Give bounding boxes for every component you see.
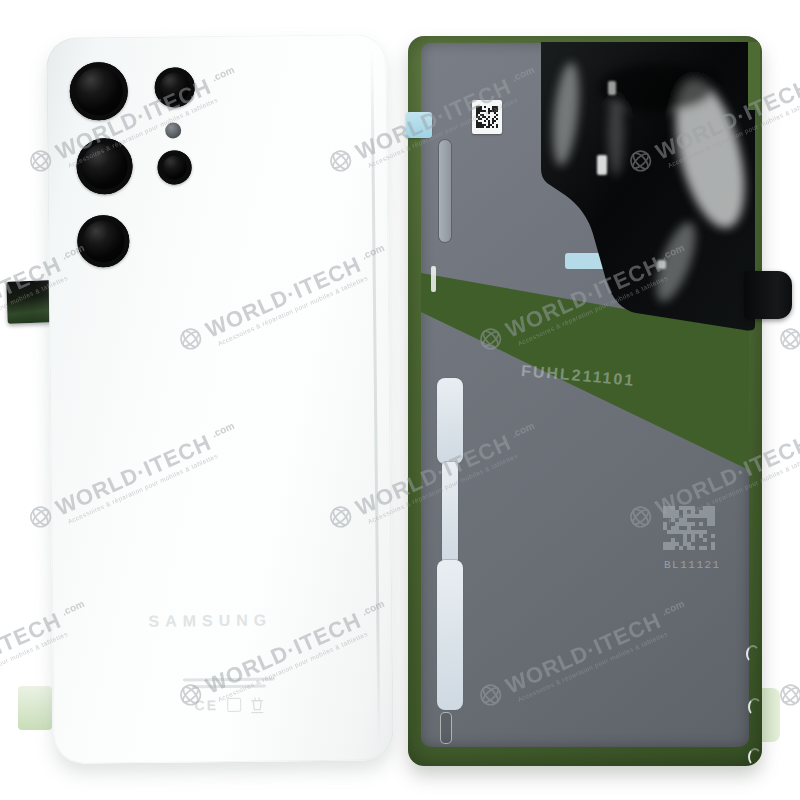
cut-mark-right-1 bbox=[746, 645, 760, 663]
adhesive-border-top-right bbox=[748, 42, 760, 110]
camera-protective-foil bbox=[408, 36, 762, 766]
watermark: WORLD·ITECH.comAccessoires & réparation … bbox=[173, 0, 393, 6]
regulatory-text-line bbox=[192, 685, 266, 689]
product-photo: SAMSUNG CE bbox=[0, 0, 800, 800]
cut-mark-right-3 bbox=[748, 748, 762, 766]
foil-pull-tab-right bbox=[744, 271, 792, 319]
weee-bin-icon bbox=[250, 696, 264, 714]
regulatory-markings: CE bbox=[171, 675, 287, 714]
camera-lens-medium-right bbox=[157, 150, 191, 184]
samsung-logo-text: SAMSUNG bbox=[140, 611, 280, 630]
adhesive-tab-bottom-left bbox=[18, 686, 52, 730]
camera-lens-large-middle bbox=[76, 138, 133, 195]
laser-af-sensor-dot bbox=[165, 122, 181, 138]
watermark: WORLD·ITECH.comAccessoires & réparation … bbox=[0, 0, 94, 6]
camera-lens-large-bottom bbox=[77, 215, 130, 268]
cut-mark-right-2 bbox=[748, 698, 762, 716]
cyan-pull-tab-left bbox=[406, 112, 432, 138]
ce-mark: CE bbox=[194, 697, 218, 713]
camera-lens-medium-top-right bbox=[155, 67, 195, 107]
watermark: WORLD·ITECH.comAccessoires & réparation … bbox=[773, 0, 800, 6]
adhesive-pull-tab-left bbox=[6, 280, 52, 324]
regulatory-box-icon bbox=[227, 698, 241, 712]
globe-icon bbox=[773, 322, 800, 356]
watermark: WORLD·ITECH.comAccessoires & réparation … bbox=[473, 0, 693, 6]
back-cover-inside: FUHL211101 BL11121 bbox=[408, 36, 762, 766]
regulatory-text-line bbox=[183, 677, 275, 681]
camera-lens-large-top bbox=[69, 62, 128, 121]
back-cover-front: SAMSUNG CE bbox=[46, 34, 394, 764]
